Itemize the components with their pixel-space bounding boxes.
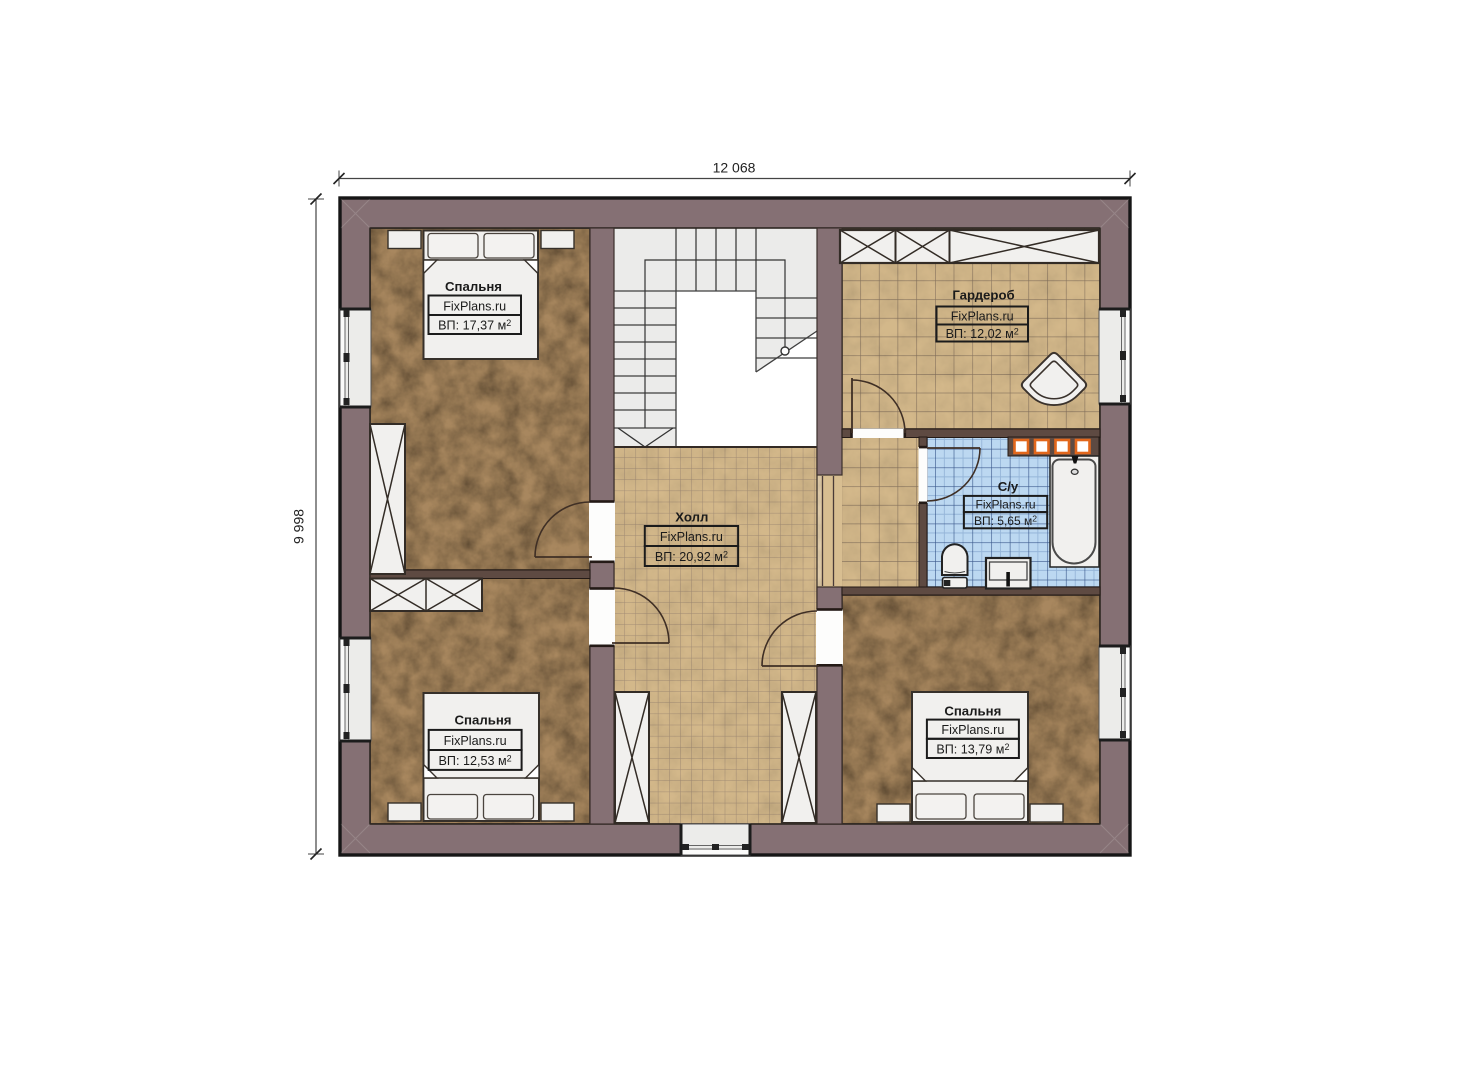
svg-text:FixPlans.ru: FixPlans.ru	[443, 300, 506, 314]
svg-text:Холл: Холл	[675, 510, 708, 525]
svg-text:С/у: С/у	[998, 479, 1019, 494]
svg-text:FixPlans.ru: FixPlans.ru	[951, 309, 1014, 323]
svg-text:12 068: 12 068	[713, 160, 756, 176]
svg-text:FixPlans.ru: FixPlans.ru	[444, 734, 507, 748]
svg-text:FixPlans.ru: FixPlans.ru	[975, 498, 1035, 512]
svg-text:ВП: 20,92 м2: ВП: 20,92 м2	[655, 550, 728, 565]
svg-text:Спальня: Спальня	[455, 713, 512, 728]
svg-text:ВП: 17,37 м2: ВП: 17,37 м2	[438, 318, 511, 333]
svg-text:Спальня: Спальня	[445, 279, 502, 294]
svg-text:FixPlans.ru: FixPlans.ru	[660, 530, 723, 544]
svg-text:ВП: 12,53 м2: ВП: 12,53 м2	[439, 754, 512, 769]
svg-text:Гардероб: Гардероб	[952, 288, 1014, 303]
svg-text:FixPlans.ru: FixPlans.ru	[941, 723, 1004, 737]
svg-text:ВП: 13,79 м2: ВП: 13,79 м2	[936, 742, 1009, 757]
svg-text:Спальня: Спальня	[944, 704, 1001, 719]
svg-text:9 998: 9 998	[291, 509, 307, 544]
svg-text:ВП: 5,65 м2: ВП: 5,65 м2	[974, 514, 1037, 529]
svg-text:ВП: 12,02 м2: ВП: 12,02 м2	[946, 327, 1019, 342]
